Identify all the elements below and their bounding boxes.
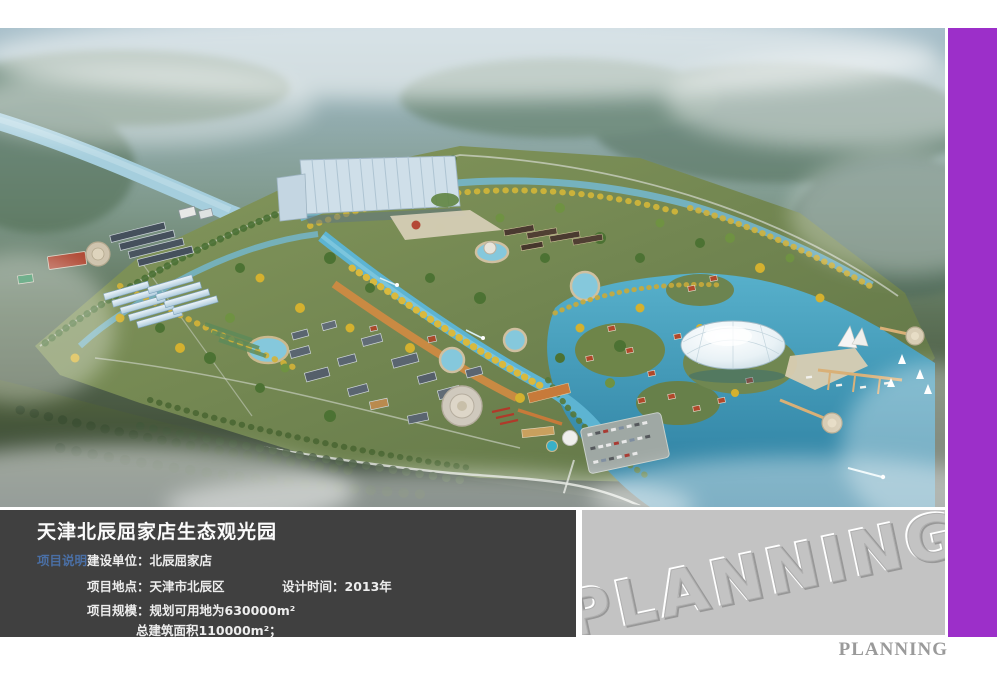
aerial-rendering [0,28,945,507]
aerial-rendering-svg [0,28,945,507]
scale-value: 规划可用地为630000m² [150,603,296,618]
scale-label: 项目规模： [87,603,150,618]
location-label: 项目地点： [87,579,150,594]
builder-label: 建设单位： [87,553,150,568]
builder-value: 北辰屈家店 [150,553,213,568]
design-time-row: 设计时间：2013年 [282,576,392,595]
section-label: 项目说明 [37,550,87,569]
design-time-label: 设计时间： [282,579,345,594]
purple-accent-stripe [948,28,997,637]
watermark-svg: PLANNING PLANNING PLANNING [582,510,945,635]
scale-row: 项目规模：规划可用地为630000m² [87,600,295,619]
presentation-board: 天津北辰屈家店生态观光园 项目说明 建设单位：北辰屈家店 项目地点：天津市北辰区… [0,0,1000,678]
dome-building [681,321,785,383]
watermark-box: PLANNING PLANNING PLANNING [582,510,945,635]
watermark-text: PLANNING [582,510,945,635]
project-info-panel: 天津北辰屈家店生态观光园 项目说明 建设单位：北辰屈家店 项目地点：天津市北辰区… [0,510,576,637]
design-time-value: 2013年 [345,579,392,594]
location-row: 项目地点：天津市北辰区 [87,576,225,595]
project-title: 天津北辰屈家店生态观光园 [37,517,277,544]
floor-area-value: 总建筑面积110000m²； [136,623,282,638]
floor-area-row: 总建筑面积110000m²； [136,620,282,639]
location-value: 天津市北辰区 [150,579,225,594]
white-sculpture [484,242,496,254]
footer-logotype: PLANNING [839,639,948,661]
builder-row: 建设单位：北辰屈家店 [87,550,212,569]
